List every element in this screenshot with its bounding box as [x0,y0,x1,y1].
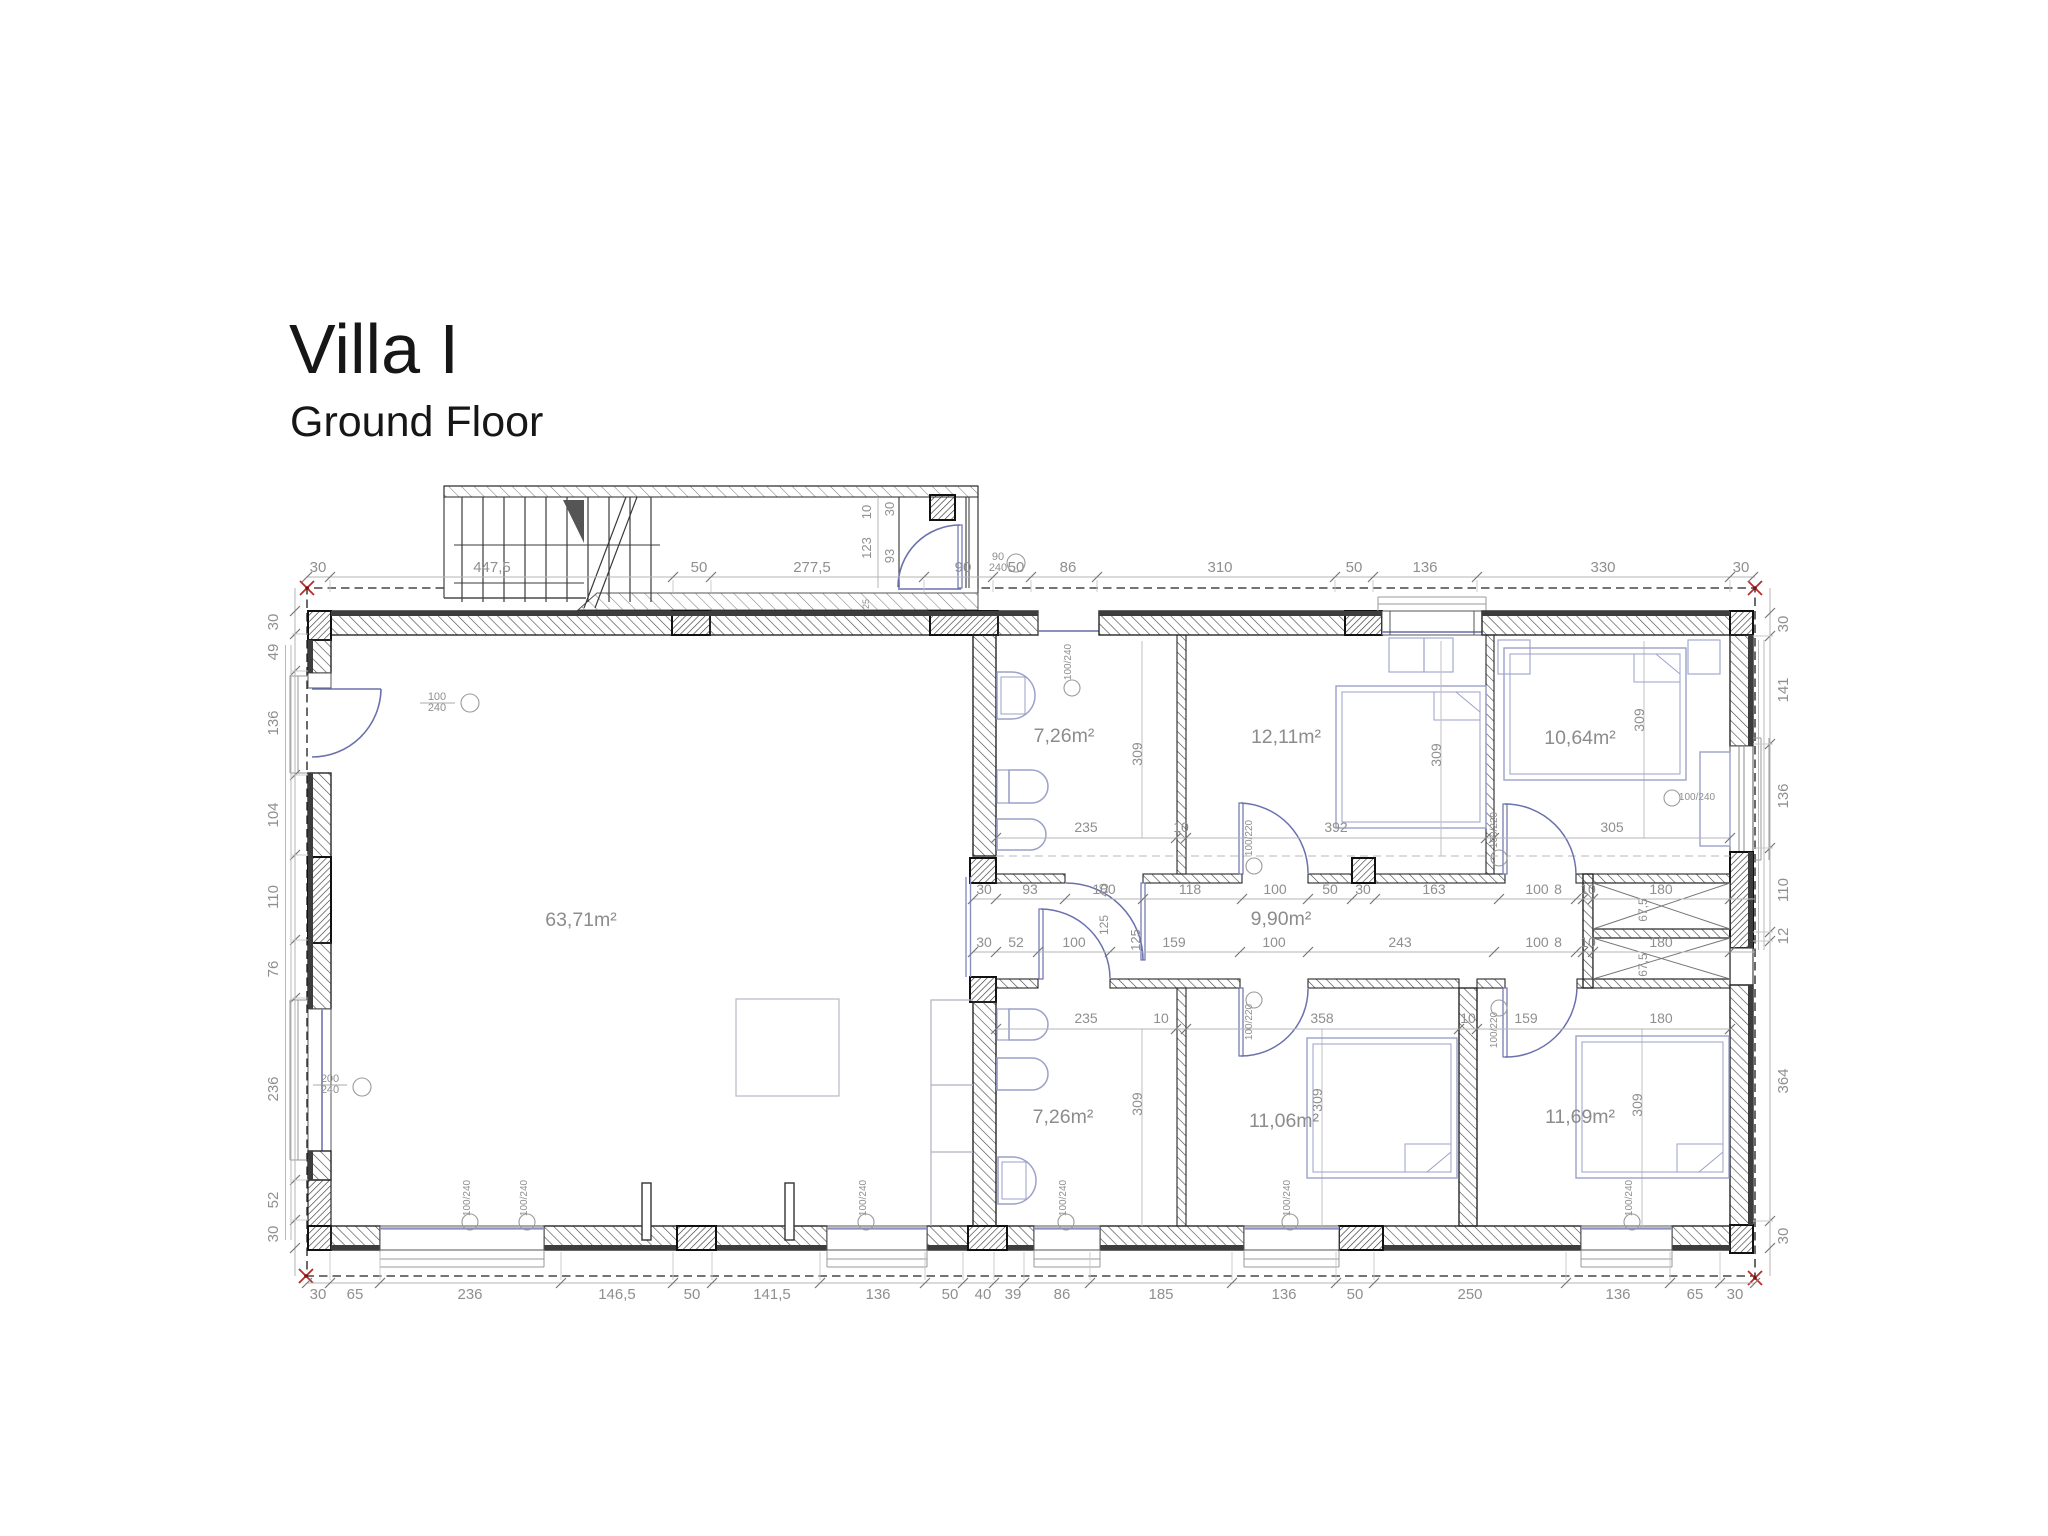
svg-text:309: 309 [1309,1088,1325,1112]
svg-text:50: 50 [942,1286,959,1303]
svg-text:10: 10 [1580,934,1596,950]
svg-text:100/240: 100/240 [462,1179,473,1216]
svg-text:100/240: 100/240 [1063,643,1074,680]
svg-text:236: 236 [265,1076,282,1101]
svg-text:11,69m²: 11,69m² [1545,1106,1616,1128]
svg-text:65: 65 [347,1286,364,1303]
svg-text:7,26m²: 7,26m² [1034,725,1095,747]
svg-text:Ground Floor: Ground Floor [290,398,543,446]
svg-text:236: 236 [457,1286,482,1303]
svg-text:50: 50 [1346,559,1363,576]
svg-text:180: 180 [1649,1010,1673,1026]
svg-text:49: 49 [265,644,282,661]
svg-text:25: 25 [861,599,871,609]
svg-text:67,5: 67,5 [1636,953,1650,977]
svg-text:100: 100 [1263,881,1287,897]
svg-text:50: 50 [1322,881,1338,897]
svg-text:100/220: 100/220 [1244,1003,1255,1040]
svg-text:309: 309 [1129,742,1145,766]
svg-text:392: 392 [1324,819,1348,835]
svg-text:110: 110 [265,885,282,909]
svg-text:10: 10 [1153,1010,1169,1026]
svg-text:30: 30 [310,559,327,576]
svg-text:8: 8 [1554,881,1562,897]
svg-text:11,06m²: 11,06m² [1249,1110,1320,1132]
svg-text:30: 30 [1775,616,1792,633]
svg-text:100/240: 100/240 [858,1179,869,1216]
svg-text:100/220: 100/220 [1489,1011,1500,1048]
svg-text:65: 65 [1687,1286,1704,1303]
svg-text:12: 12 [1775,928,1792,945]
svg-text:30: 30 [310,1286,327,1303]
svg-text:52: 52 [265,1192,282,1209]
svg-text:93: 93 [1022,881,1038,897]
svg-text:10,64m²: 10,64m² [1544,727,1616,749]
svg-text:309: 309 [1129,1092,1145,1116]
svg-text:100/220: 100/220 [1489,811,1500,848]
svg-text:235: 235 [1074,1010,1098,1026]
svg-text:277,5: 277,5 [793,559,831,576]
svg-text:100: 100 [1525,881,1549,897]
svg-text:30: 30 [265,1226,282,1243]
svg-text:358: 358 [1310,1010,1334,1026]
svg-text:86: 86 [1060,559,1077,576]
svg-text:447,5: 447,5 [473,559,511,576]
svg-text:30: 30 [1733,559,1750,576]
svg-text:104: 104 [265,802,282,827]
svg-text:10: 10 [859,505,874,519]
svg-text:100/240: 100/240 [1282,1179,1293,1216]
svg-text:50: 50 [684,1286,701,1303]
svg-text:12,11m²: 12,11m² [1251,726,1322,748]
svg-text:40: 40 [1097,883,1111,897]
svg-text:185: 185 [1148,1286,1173,1303]
svg-text:136: 136 [865,1286,890,1303]
svg-text:110: 110 [1775,878,1792,902]
svg-text:243: 243 [1388,934,1412,950]
svg-text:136: 136 [265,710,282,735]
svg-text:136: 136 [1271,1286,1296,1303]
svg-text:330: 330 [1590,559,1615,576]
svg-text:100/220: 100/220 [1244,819,1255,856]
svg-text:30: 30 [1727,1286,1744,1303]
svg-text:86: 86 [1054,1286,1071,1303]
svg-text:90: 90 [955,559,972,576]
svg-text:50: 50 [1347,1286,1364,1303]
svg-text:100/240: 100/240 [1624,1179,1635,1216]
svg-text:39: 39 [1005,1286,1022,1303]
svg-text:240: 240 [428,702,446,714]
svg-text:309: 309 [1428,743,1444,767]
svg-text:146,5: 146,5 [598,1286,636,1303]
svg-text:100: 100 [1525,934,1549,950]
svg-text:136: 136 [1412,559,1437,576]
svg-text:76: 76 [265,961,282,978]
svg-text:10: 10 [1173,819,1189,835]
svg-text:10: 10 [1580,881,1596,897]
svg-text:30: 30 [976,881,992,897]
svg-text:125: 125 [1097,915,1111,935]
svg-text:30: 30 [882,502,897,516]
svg-text:8: 8 [1554,934,1562,950]
svg-text:9,90m²: 9,90m² [1251,908,1312,930]
svg-text:309: 309 [1629,1093,1645,1117]
svg-text:163: 163 [1422,881,1446,897]
svg-text:136: 136 [1605,1286,1630,1303]
svg-text:310: 310 [1207,559,1232,576]
svg-text:180: 180 [1649,881,1673,897]
svg-text:159: 159 [1162,934,1186,950]
svg-text:235: 235 [1074,819,1098,835]
svg-text:100: 100 [1262,934,1286,950]
svg-text:180: 180 [1649,934,1673,950]
svg-text:250: 250 [1457,1286,1482,1303]
svg-text:100/240: 100/240 [1679,792,1716,803]
svg-text:10: 10 [1460,1010,1476,1026]
svg-text:67,5: 67,5 [1636,898,1650,922]
svg-text:159: 159 [1514,1010,1538,1026]
svg-text:100/240: 100/240 [1058,1179,1069,1216]
svg-text:30: 30 [976,934,992,950]
svg-text:305: 305 [1600,819,1624,835]
svg-text:30: 30 [265,614,282,631]
svg-text:100: 100 [1062,934,1086,950]
svg-text:240: 240 [321,1084,339,1096]
svg-text:40: 40 [975,1286,992,1303]
svg-text:50: 50 [1008,559,1025,576]
svg-text:30: 30 [1355,881,1371,897]
svg-text:118: 118 [1179,881,1202,897]
svg-text:364: 364 [1775,1068,1792,1093]
svg-text:125: 125 [1128,929,1143,951]
svg-text:309: 309 [1631,708,1647,732]
svg-text:7,26m²: 7,26m² [1033,1106,1094,1128]
svg-text:100/240: 100/240 [519,1179,530,1216]
svg-text:50: 50 [691,559,708,576]
svg-text:123: 123 [859,537,874,559]
svg-text:141,5: 141,5 [753,1286,791,1303]
svg-text:136: 136 [1775,783,1792,808]
svg-text:141: 141 [1775,677,1792,702]
svg-text:93: 93 [882,549,897,563]
svg-text:Villa I: Villa I [289,310,459,388]
svg-text:63,71m²: 63,71m² [545,909,617,931]
svg-text:30: 30 [1775,1228,1792,1245]
svg-text:52: 52 [1008,934,1024,950]
